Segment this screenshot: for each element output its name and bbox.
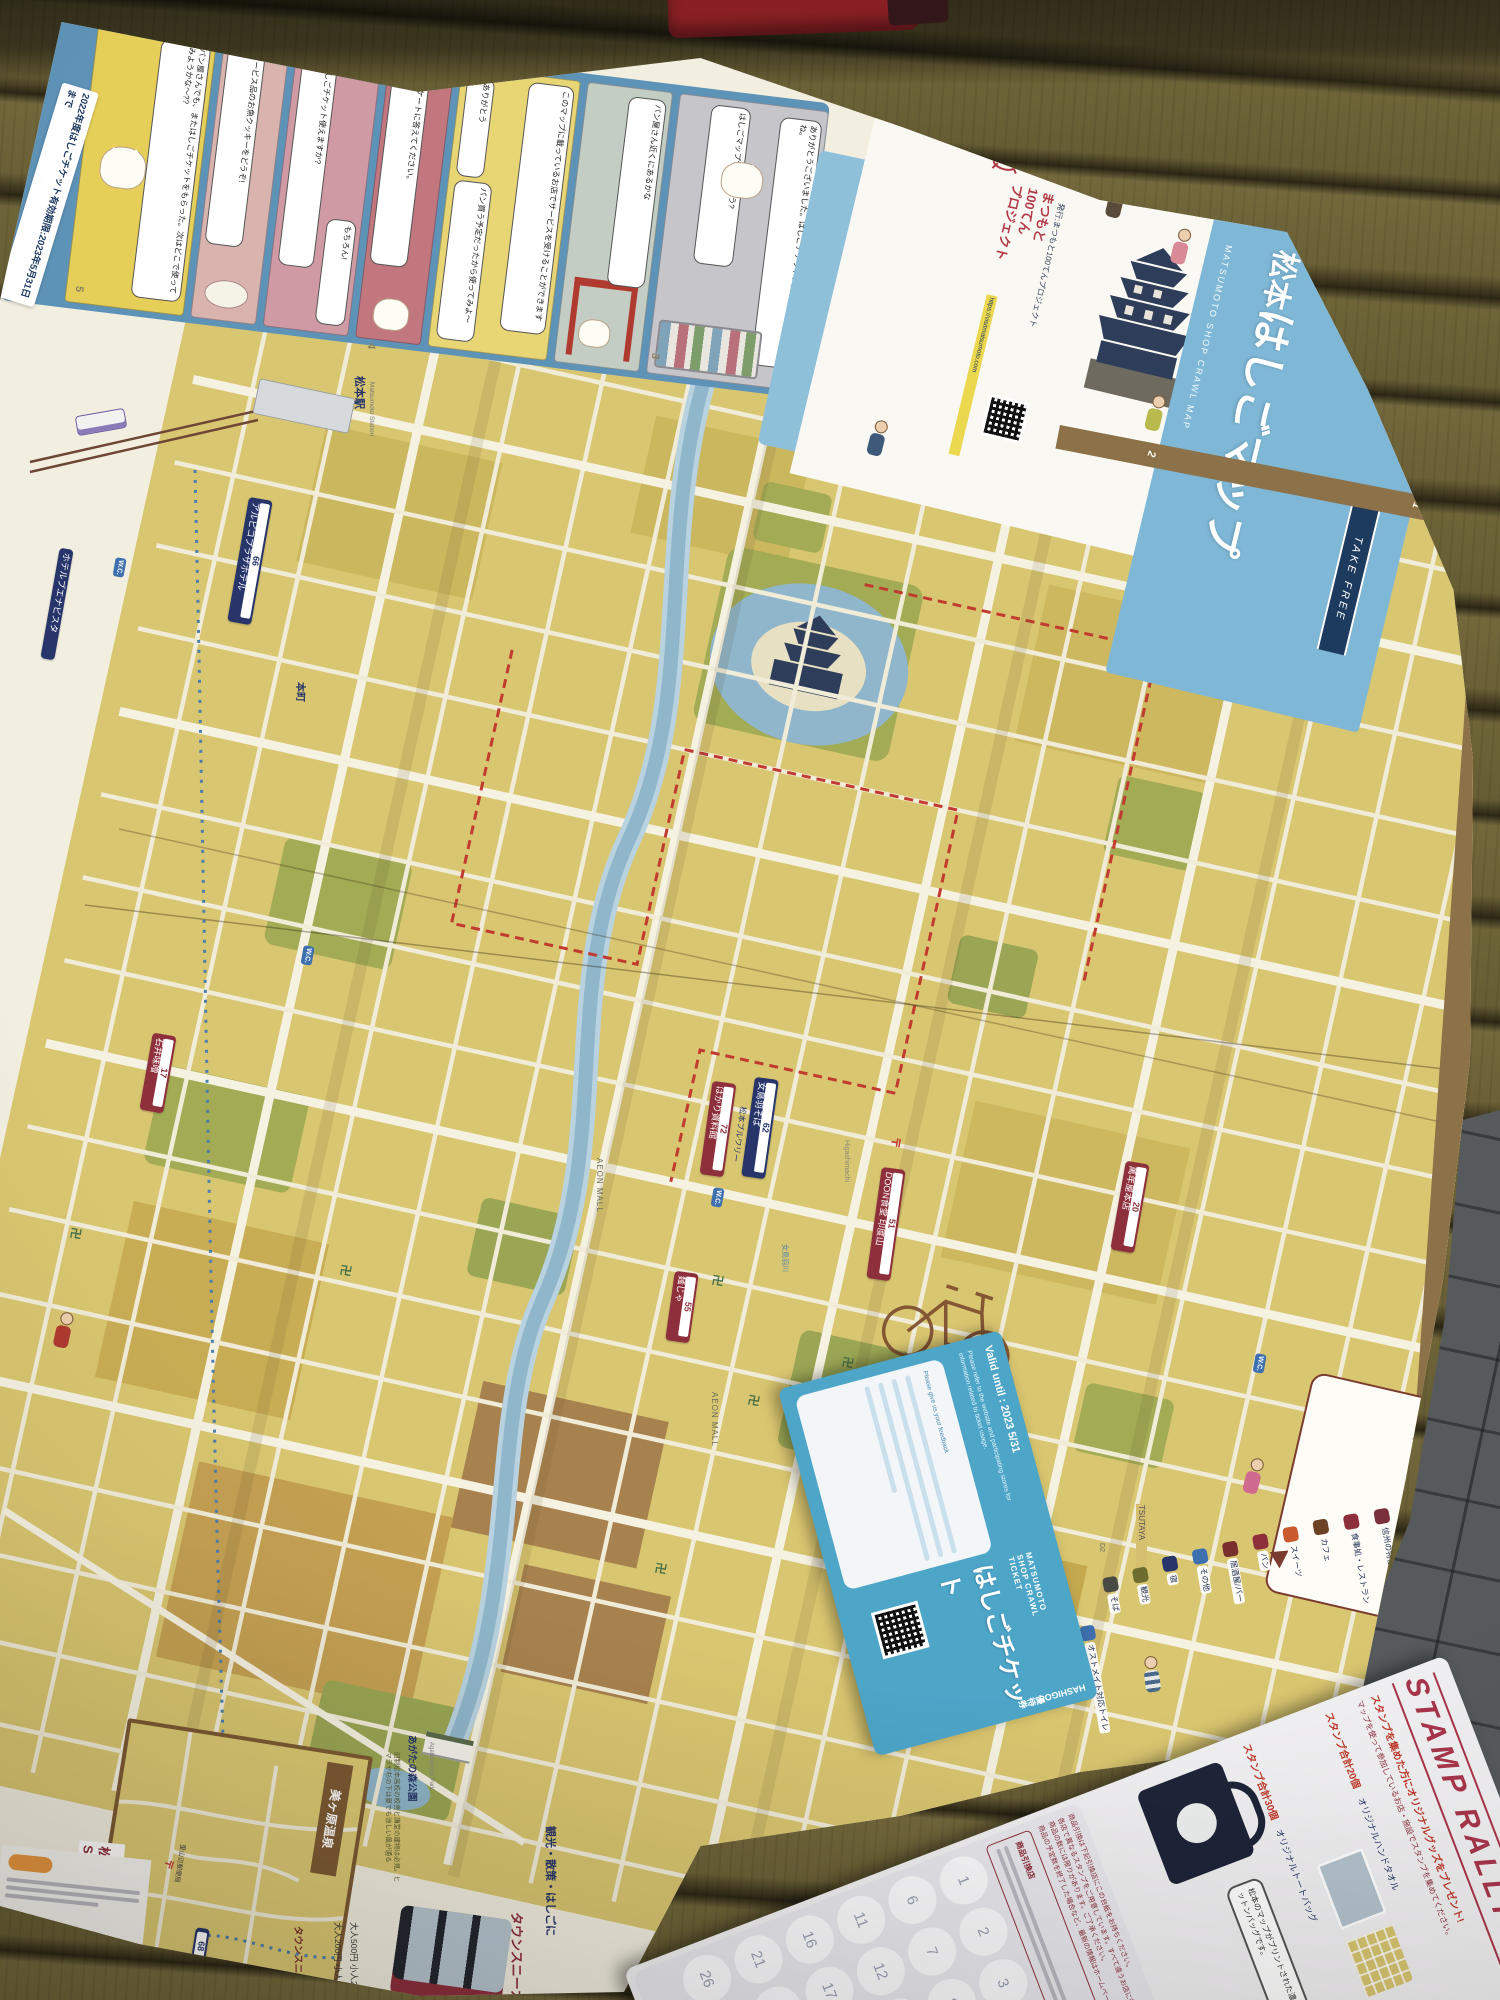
sightseeing-icon	[1132, 1566, 1149, 1583]
other-icon	[1191, 1548, 1208, 1565]
photo-of-matsumoto-hashigo-map: D パン屋さんでも、またはしごチケットをもらった。次はどこで使ってみようかな〜?…	[0, 0, 1500, 2000]
stamp-circle-16: 16	[779, 1909, 841, 1971]
legend-item-label: パン	[1257, 1550, 1271, 1572]
bar-icon	[1222, 1540, 1239, 1557]
cat-character	[371, 296, 411, 332]
speech-bubble: アンケートに答えてください。	[369, 65, 431, 268]
speech-bubble: パン屋さん近くにあるかな	[606, 96, 667, 289]
soba-icon	[1102, 1576, 1119, 1593]
ticket-qr-code	[871, 1601, 930, 1660]
tote-bag-illustration	[1136, 1761, 1256, 1887]
store-label-aeon-mall: AEON MALL	[595, 1158, 604, 1238]
station-name-label: 松本駅	[352, 376, 368, 436]
agata-park-label: あがたの森公園	[406, 1735, 420, 1831]
cover-title-hashigo: はしご	[1225, 305, 1300, 439]
legend-item-label: 宿	[1166, 1572, 1178, 1586]
unfolded-map-sheet: D パン屋さんでも、またはしごチケットをもらった。次はどこで使ってみようかな〜?…	[0, 0, 1500, 2000]
specialty-icon	[1373, 1508, 1390, 1525]
take-free-label: TAKE FREE	[1333, 535, 1365, 623]
fold-number: 2	[1145, 449, 1158, 459]
cafe-icon	[1312, 1518, 1329, 1535]
shop-shelf	[654, 319, 763, 379]
orange-tag	[8, 1853, 53, 1874]
store-label-aeon-mall: AEON MALL	[710, 1392, 719, 1472]
qr-code	[980, 394, 1031, 445]
cat-character	[98, 144, 149, 191]
legend-item-label: スイーツ	[1287, 1543, 1303, 1580]
stamp-circle-12: 12	[850, 1940, 912, 2000]
legend-item-label: その他	[1197, 1565, 1212, 1594]
speech-bubble: サービス品のお魚クッキーをどうぞ!	[204, 45, 266, 248]
town-sneaker-bus-illustration	[389, 1905, 512, 2000]
cover-title-map: マップ	[1196, 427, 1271, 561]
cover-title-matsumoto: 松本	[1256, 247, 1302, 313]
agata-park-note: 旧制松本高校の校舎と講堂の建物は必見。ヒマラヤ杉の下は夏でも涼しい風が通る	[378, 1752, 400, 1882]
speech-bubble: もちろん!	[314, 218, 357, 327]
stamp-circle-3: 3	[972, 1952, 1034, 2000]
ticket-title-block: MATSUMOTO SHOP CRAWL TICKET はしごチケット	[933, 1551, 1071, 1723]
bread-icon	[1252, 1533, 1269, 1550]
speech-bubble: ありがとう	[455, 76, 495, 179]
tote-print-circle	[1171, 1797, 1223, 1849]
speech-bubble: パン買う予定だったから使ってみよ〜	[435, 179, 492, 342]
restaurant-icon	[1343, 1513, 1360, 1530]
dark-case-shadow	[887, 0, 949, 26]
stamp-circle-7: 7	[901, 1920, 963, 1982]
legend-item-label: そば	[1107, 1593, 1121, 1615]
stamp-circle-6: 6	[881, 1869, 943, 1931]
stamp-circle-8: 8	[921, 1972, 983, 2000]
comic-panel-bakery-cat: パン屋さんでも、またはしごチケットをもらった。次はどこで使ってみようかな〜??	[64, 22, 217, 317]
stamp-circle-11: 11	[830, 1889, 892, 1951]
take-free-ribbon: TAKE FREE	[1317, 503, 1381, 656]
legend-item-label: 観光	[1137, 1584, 1151, 1606]
inset-title: 美ヶ原温泉	[319, 1788, 345, 1850]
stamp-circle-2: 2	[953, 1901, 1015, 1963]
lodging-icon	[1161, 1555, 1178, 1572]
map-print-photo	[1345, 1924, 1413, 1998]
agata-park-label-english: Agatanomori Park	[428, 1742, 434, 1838]
bus-tagline: 観光・散策・はしごに	[543, 1826, 559, 1996]
stamp-circle-17: 17	[798, 1960, 860, 2000]
stamp-circle-1: 1	[933, 1849, 995, 1911]
street-name-higashimachi: Higashimachi	[843, 1140, 850, 1210]
prize-20-count: スタンプ合計20個	[1322, 1711, 1361, 1790]
river-name-label: 女鳥羽川	[780, 1244, 790, 1300]
ticket-form-area: Please give us your feedback	[794, 1358, 993, 1591]
comic-panel-service: このマップに載っているお店でサービスを受けることができます ありがとう パン買う…	[427, 66, 580, 361]
legend-item-label: 食事処・レストラン	[1348, 1530, 1371, 1607]
legend-item-label: 居酒屋/バー	[1227, 1558, 1245, 1605]
sweets-icon	[1282, 1526, 1299, 1543]
prize-30-name: オリジナルトートバッグ	[1274, 1828, 1319, 1924]
district-label-honmachi: 本町	[294, 682, 309, 716]
legend-item-label: カフェ	[1317, 1535, 1332, 1564]
station-name-english: Matsumoto Station	[368, 382, 375, 472]
stamp-circle-26: 26	[676, 1948, 738, 2000]
stamp-circle-21: 21	[727, 1928, 789, 1990]
fish-cookie-plate	[203, 278, 250, 311]
